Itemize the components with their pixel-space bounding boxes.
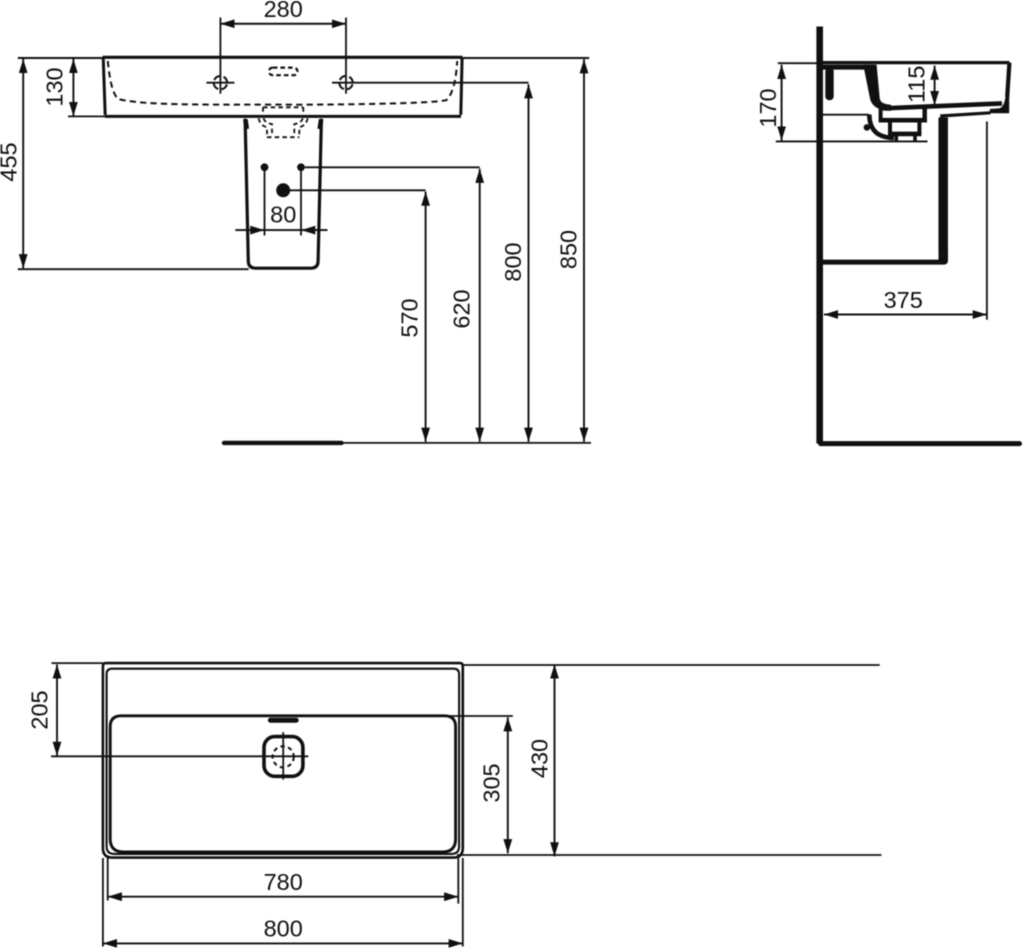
svg-text:170: 170 [755, 88, 781, 127]
svg-text:130: 130 [42, 67, 68, 106]
svg-text:780: 780 [264, 869, 303, 895]
svg-text:430: 430 [527, 739, 553, 778]
svg-text:80: 80 [270, 202, 296, 228]
svg-text:620: 620 [449, 289, 475, 328]
svg-text:850: 850 [556, 230, 582, 269]
svg-text:205: 205 [27, 690, 53, 729]
svg-text:570: 570 [396, 298, 422, 337]
svg-text:280: 280 [264, 0, 303, 22]
svg-text:800: 800 [264, 915, 303, 941]
svg-text:115: 115 [904, 66, 930, 103]
svg-text:305: 305 [479, 763, 505, 802]
svg-text:375: 375 [884, 287, 923, 313]
svg-text:800: 800 [500, 242, 526, 281]
svg-text:455: 455 [0, 142, 21, 181]
